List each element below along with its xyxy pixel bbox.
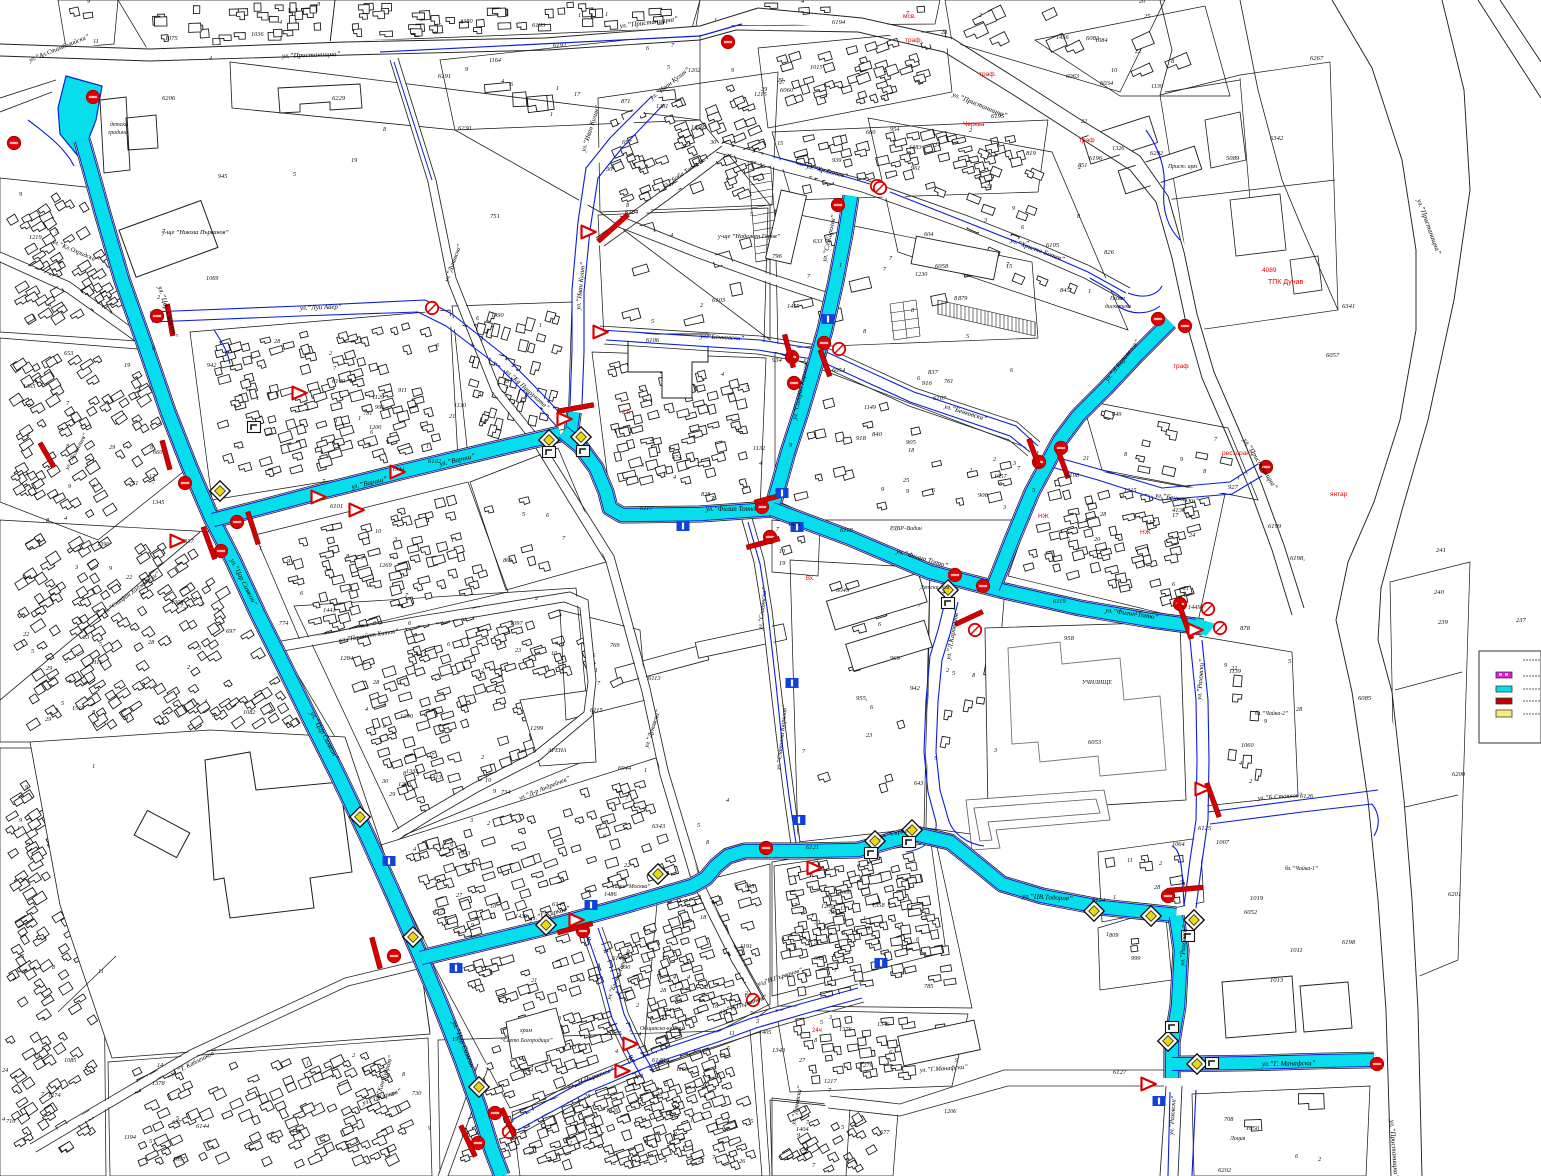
svg-text:27: 27 — [799, 1057, 806, 1064]
svg-text:3: 3 — [1002, 504, 1006, 511]
svg-text:655: 655 — [745, 883, 754, 890]
svg-text:27: 27 — [779, 79, 786, 86]
svg-text:1390: 1390 — [97, 541, 110, 548]
svg-text:10: 10 — [375, 528, 382, 535]
svg-text:761: 761 — [944, 378, 953, 385]
svg-text:22: 22 — [1081, 118, 1087, 125]
svg-text:837: 837 — [928, 369, 939, 376]
svg-text:1413: 1413 — [429, 774, 442, 781]
svg-text:1130: 1130 — [454, 402, 467, 409]
svg-text:2: 2 — [187, 664, 190, 671]
svg-text:1284: 1284 — [340, 655, 354, 662]
svg-text:13: 13 — [840, 905, 846, 912]
svg-text:1: 1 — [539, 322, 542, 329]
svg-text:6198: 6198 — [1342, 939, 1356, 946]
svg-text:809: 809 — [1109, 932, 1119, 939]
svg-text:27: 27 — [428, 752, 435, 759]
svg-text:1: 1 — [839, 262, 842, 269]
svg-text:1405: 1405 — [759, 1029, 771, 1036]
svg-text:774: 774 — [279, 620, 288, 627]
svg-text:1011: 1011 — [1290, 947, 1303, 954]
svg-text:хижа”Москва”: хижа”Москва” — [611, 884, 650, 890]
svg-text:29: 29 — [761, 86, 767, 93]
svg-text:237: 237 — [1516, 617, 1527, 624]
svg-text:5: 5 — [1180, 879, 1183, 886]
svg-text:1345: 1345 — [152, 499, 164, 506]
svg-text:3: 3 — [203, 698, 207, 705]
svg-text:5: 5 — [293, 171, 296, 178]
svg-text:4: 4 — [687, 974, 690, 981]
svg-text:1116: 1116 — [91, 659, 103, 666]
svg-text:10: 10 — [490, 903, 497, 910]
svg-text:828: 828 — [701, 491, 711, 498]
svg-text:9: 9 — [19, 817, 22, 824]
svg-text:954: 954 — [890, 126, 899, 133]
svg-text:10: 10 — [779, 548, 786, 555]
svg-text:6102: 6102 — [428, 458, 442, 465]
svg-text:ул.”Г. Манафски”: ул.”Г. Манафски” — [1261, 1059, 1316, 1068]
svg-text:2: 2 — [969, 127, 972, 134]
svg-text:1200: 1200 — [369, 424, 382, 431]
svg-text:30: 30 — [605, 166, 613, 173]
svg-text:905: 905 — [906, 439, 917, 446]
svg-text:1365: 1365 — [23, 383, 35, 390]
svg-text:2: 2 — [636, 1002, 639, 1009]
svg-text:3: 3 — [197, 645, 201, 652]
svg-text:20: 20 — [1094, 536, 1101, 543]
svg-text:1376: 1376 — [839, 1026, 852, 1033]
svg-text:4: 4 — [670, 232, 673, 239]
svg-text:3: 3 — [74, 564, 78, 571]
svg-text:9: 9 — [955, 1057, 958, 1064]
svg-text:28: 28 — [660, 987, 667, 994]
svg-text:3: 3 — [640, 462, 644, 469]
svg-text:23: 23 — [866, 732, 872, 739]
svg-text:5: 5 — [478, 391, 481, 398]
svg-text:731: 731 — [363, 410, 372, 417]
svg-text:23: 23 — [656, 1091, 662, 1098]
svg-text:6292: 6292 — [1150, 150, 1164, 157]
svg-text:6341: 6341 — [1342, 303, 1355, 310]
svg-text:градина: градина — [108, 129, 128, 136]
svg-text:958: 958 — [1064, 635, 1075, 642]
svg-text:1219: 1219 — [29, 234, 42, 241]
svg-text:1006: 1006 — [839, 889, 852, 896]
svg-text:1230: 1230 — [915, 271, 928, 278]
svg-text:6202: 6202 — [1218, 1167, 1232, 1174]
svg-text:6115: 6115 — [590, 707, 603, 714]
svg-text:3: 3 — [923, 915, 927, 922]
svg-text:911: 911 — [398, 387, 407, 394]
svg-text:1015: 1015 — [810, 64, 823, 71]
svg-text:677: 677 — [880, 1129, 890, 1136]
svg-text:6057: 6057 — [1326, 352, 1340, 359]
svg-text:24: 24 — [2, 1067, 8, 1074]
svg-text:4: 4 — [673, 474, 676, 481]
svg-text:819: 819 — [1026, 150, 1037, 157]
svg-text:5: 5 — [750, 1118, 753, 1125]
svg-text:1139: 1139 — [1151, 83, 1163, 90]
svg-text:2: 2 — [487, 820, 490, 827]
svg-text:4: 4 — [402, 782, 405, 789]
svg-text:6201: 6201 — [1448, 891, 1461, 898]
svg-text:916: 916 — [922, 380, 933, 387]
svg-text:4: 4 — [942, 589, 945, 596]
svg-text:1: 1 — [690, 1117, 693, 1124]
svg-text:Прист. арм: Прист. арм — [1167, 164, 1197, 170]
svg-text:ресторант: ресторант — [1222, 450, 1253, 457]
svg-text:Вх.: Вх. — [806, 576, 815, 582]
svg-text:1475: 1475 — [788, 521, 800, 528]
svg-text:6054: 6054 — [832, 367, 846, 374]
svg-text:1515: 1515 — [72, 705, 84, 712]
svg-text:1279: 1279 — [860, 1062, 873, 1069]
svg-text:22: 22 — [624, 862, 631, 869]
svg-text:21: 21 — [1183, 585, 1189, 592]
svg-text:17: 17 — [791, 902, 798, 909]
svg-text:918: 918 — [856, 435, 867, 442]
svg-text:1274: 1274 — [48, 1092, 61, 1099]
svg-text:30: 30 — [381, 778, 389, 785]
svg-text:5089: 5089 — [1226, 155, 1240, 162]
svg-text:6125: 6125 — [1198, 825, 1212, 832]
svg-text:1057: 1057 — [994, 473, 1007, 480]
svg-text:дискотека: дискотека — [1105, 303, 1131, 310]
svg-text:6146: 6146 — [612, 955, 626, 962]
svg-text:4: 4 — [721, 371, 724, 378]
svg-text:22: 22 — [23, 631, 29, 638]
svg-text:943: 943 — [461, 850, 470, 857]
svg-text:АРЕНА: АРЕНА — [547, 748, 567, 754]
svg-text:1007: 1007 — [1216, 839, 1230, 846]
svg-text:927: 927 — [1228, 484, 1239, 491]
svg-text:9: 9 — [25, 784, 28, 791]
svg-text:1097: 1097 — [510, 620, 523, 627]
svg-text:5: 5 — [667, 64, 670, 71]
svg-text:15: 15 — [777, 140, 783, 147]
svg-text:999: 999 — [1131, 955, 1141, 962]
svg-text:13: 13 — [637, 1096, 643, 1103]
svg-text:5: 5 — [697, 822, 700, 829]
svg-text:9: 9 — [731, 67, 734, 74]
svg-text:6108: 6108 — [1066, 472, 1080, 479]
svg-text:3: 3 — [755, 1018, 759, 1025]
svg-text:4: 4 — [726, 797, 729, 804]
svg-text:6060: 6060 — [780, 87, 794, 94]
svg-text:6149: 6149 — [652, 1057, 666, 1064]
svg-text:18: 18 — [908, 447, 915, 454]
svg-text:1075: 1075 — [165, 35, 178, 42]
svg-text:1: 1 — [17, 825, 20, 832]
svg-text:РДВР–Видин: РДВР–Видин — [889, 525, 922, 532]
svg-text:6119: 6119 — [1053, 598, 1066, 605]
svg-text:969: 969 — [890, 655, 901, 662]
svg-text:5: 5 — [952, 670, 955, 677]
svg-text:ТПК Дунав: ТПК Дунав — [1268, 279, 1303, 286]
svg-text:30: 30 — [801, 1146, 809, 1153]
svg-text:1194: 1194 — [124, 1134, 136, 1141]
svg-text:1: 1 — [306, 1060, 309, 1067]
svg-text:5: 5 — [651, 318, 654, 325]
svg-text:6193: 6193 — [532, 22, 546, 29]
svg-text:5: 5 — [55, 228, 58, 235]
svg-text:4: 4 — [2, 1116, 5, 1123]
svg-text:942: 942 — [910, 685, 921, 692]
svg-text:29: 29 — [109, 444, 115, 451]
svg-text:6053: 6053 — [1088, 739, 1102, 746]
svg-text:1: 1 — [578, 12, 581, 19]
svg-text:1: 1 — [358, 415, 361, 422]
svg-text:996: 996 — [375, 404, 385, 411]
svg-text:4: 4 — [413, 846, 416, 853]
svg-text:траф: траф — [1079, 137, 1095, 144]
svg-text:2: 2 — [745, 990, 748, 997]
svg-text:878: 878 — [1240, 625, 1251, 632]
svg-text:бл.”Чайка-2”: бл.”Чайка-2” — [1255, 710, 1288, 717]
svg-text:1139: 1139 — [1229, 668, 1241, 675]
svg-text:955,: 955, — [856, 695, 868, 702]
svg-text:6101: 6101 — [330, 503, 343, 510]
svg-text:708: 708 — [1224, 1116, 1234, 1123]
svg-text:6195: 6195 — [991, 113, 1005, 120]
svg-text:5: 5 — [31, 648, 34, 655]
svg-text:10: 10 — [1111, 67, 1118, 74]
svg-text:751: 751 — [490, 213, 500, 220]
svg-text:734: 734 — [501, 789, 510, 796]
svg-text:4: 4 — [279, 19, 282, 26]
svg-text:6342: 6342 — [1270, 135, 1284, 142]
svg-text:1433: 1433 — [515, 913, 528, 920]
svg-text:11: 11 — [93, 38, 99, 45]
svg-text:6194: 6194 — [832, 19, 846, 26]
svg-text:730: 730 — [412, 1090, 422, 1097]
svg-text:11: 11 — [1127, 857, 1133, 864]
svg-text:863: 863 — [503, 557, 512, 564]
svg-text:5: 5 — [42, 1016, 45, 1023]
svg-text:28: 28 — [1100, 511, 1107, 518]
svg-text:28: 28 — [148, 639, 155, 646]
svg-text:бл.”Чайка-1”: бл.”Чайка-1” — [1285, 865, 1318, 872]
svg-text:20: 20 — [1139, 0, 1146, 5]
svg-text:6199: 6199 — [1268, 523, 1282, 530]
svg-text:9: 9 — [1012, 205, 1015, 212]
svg-text:24: 24 — [1189, 532, 1195, 539]
svg-text:1426: 1426 — [606, 1107, 619, 1114]
svg-text:5: 5 — [1288, 658, 1291, 665]
svg-text:27: 27 — [698, 1157, 705, 1164]
svg-text:26: 26 — [739, 1158, 746, 1165]
svg-text:4: 4 — [1239, 760, 1242, 767]
svg-text:1378: 1378 — [152, 1080, 165, 1087]
svg-text:4089: 4089 — [1262, 267, 1277, 274]
svg-text:942: 942 — [207, 362, 216, 369]
svg-text:5: 5 — [814, 939, 817, 946]
svg-text:1: 1 — [556, 85, 559, 92]
svg-text:24: 24 — [934, 142, 940, 149]
svg-text:2: 2 — [969, 467, 972, 474]
svg-text:5: 5 — [727, 1045, 730, 1052]
svg-text:6085: 6085 — [1358, 695, 1372, 702]
svg-text:22: 22 — [1135, 48, 1141, 55]
svg-text:4: 4 — [125, 715, 128, 722]
svg-text:240: 240 — [1434, 589, 1445, 596]
svg-text:6230: 6230 — [458, 125, 472, 132]
svg-text:6103: 6103 — [712, 297, 726, 304]
svg-text:5: 5 — [212, 712, 215, 719]
svg-text:1: 1 — [1135, 610, 1138, 617]
svg-text:1: 1 — [863, 915, 866, 922]
svg-text:662: 662 — [814, 955, 824, 962]
svg-text:604: 604 — [924, 231, 933, 238]
svg-text:3: 3 — [828, 1014, 832, 1021]
svg-text:19: 19 — [351, 157, 357, 164]
svg-text:29: 29 — [46, 665, 52, 672]
svg-text:17: 17 — [1149, 519, 1156, 526]
svg-text:27: 27 — [456, 892, 463, 899]
svg-text:1: 1 — [168, 636, 171, 643]
svg-text:1: 1 — [451, 537, 454, 544]
svg-text:6063: 6063 — [1066, 73, 1080, 80]
svg-text:4130: 4130 — [1172, 507, 1186, 514]
svg-text:6034: 6034 — [1100, 80, 1114, 87]
svg-text:28: 28 — [941, 29, 948, 36]
svg-text:906: 906 — [978, 492, 989, 499]
svg-text:3: 3 — [415, 771, 419, 778]
svg-text:6267: 6267 — [1310, 55, 1324, 62]
svg-text:1441: 1441 — [323, 607, 336, 614]
svg-text:28: 28 — [1154, 884, 1161, 891]
svg-text:1085: 1085 — [64, 1057, 76, 1064]
svg-text:1129: 1129 — [372, 394, 385, 401]
svg-text:6206: 6206 — [162, 95, 176, 102]
svg-text:934: 934 — [772, 357, 783, 364]
svg-text:23: 23 — [83, 634, 89, 641]
svg-text:2: 2 — [200, 601, 203, 608]
svg-text:5: 5 — [750, 1010, 753, 1017]
svg-text:845: 845 — [1060, 287, 1071, 294]
svg-text:3: 3 — [393, 536, 397, 543]
svg-text:1202: 1202 — [688, 67, 700, 74]
svg-text:5: 5 — [574, 1061, 577, 1068]
svg-text:5: 5 — [1067, 536, 1070, 543]
svg-text:3: 3 — [993, 747, 997, 754]
svg-text:16: 16 — [676, 997, 683, 1004]
svg-text:1: 1 — [509, 812, 512, 819]
svg-text:23: 23 — [986, 183, 992, 190]
svg-text:24ч: 24ч — [812, 1028, 822, 1034]
svg-text:2: 2 — [481, 754, 484, 761]
svg-text:6126: 6126 — [1300, 793, 1314, 800]
svg-text:1490: 1490 — [491, 312, 504, 319]
svg-text:5: 5 — [820, 1019, 823, 1026]
svg-text:4: 4 — [615, 1048, 618, 1055]
svg-text:826: 826 — [1104, 249, 1115, 256]
svg-text:1215: 1215 — [1124, 487, 1136, 494]
svg-text:5: 5 — [149, 1138, 152, 1145]
svg-text:774: 774 — [662, 1007, 671, 1014]
svg-text:у-ще ”Надежен Геров”: у-ще ”Надежен Геров” — [717, 233, 781, 240]
svg-text:4: 4 — [664, 1158, 667, 1165]
svg-text:28: 28 — [373, 679, 380, 686]
svg-text:751: 751 — [129, 480, 138, 487]
svg-text:1132: 1132 — [753, 445, 766, 452]
svg-text:1036: 1036 — [251, 31, 264, 38]
svg-text:18: 18 — [700, 914, 707, 921]
svg-text:Общинско-кв.Вли: Общинско-кв.Вли — [640, 1025, 683, 1032]
svg-text:1303: 1303 — [171, 599, 183, 606]
svg-text:840: 840 — [872, 431, 883, 438]
svg-text:5: 5 — [99, 641, 102, 648]
svg-text:1082: 1082 — [243, 709, 255, 716]
svg-text:1455: 1455 — [787, 303, 799, 310]
svg-text:1: 1 — [426, 443, 429, 450]
svg-text:1149: 1149 — [864, 404, 876, 411]
svg-text:30: 30 — [813, 919, 821, 926]
svg-text:5: 5 — [1032, 487, 1035, 494]
svg-text:9: 9 — [493, 788, 496, 795]
svg-text:3: 3 — [1012, 460, 1016, 467]
svg-text:6058: 6058 — [935, 263, 949, 270]
svg-text:1050: 1050 — [1246, 1125, 1260, 1132]
svg-text:241: 241 — [1436, 547, 1446, 554]
svg-text:1: 1 — [674, 983, 677, 990]
svg-text:6045: 6045 — [836, 587, 850, 594]
svg-text:871: 871 — [621, 98, 630, 105]
svg-text:”Свето Богородица”: ”Свето Богородица” — [500, 1037, 553, 1044]
svg-text:2: 2 — [157, 294, 160, 301]
svg-text:1191: 1191 — [740, 943, 752, 950]
svg-text:6196: 6196 — [1089, 155, 1103, 162]
svg-text:10: 10 — [551, 650, 558, 657]
svg-text:1358: 1358 — [872, 902, 885, 909]
svg-text:6192: 6192 — [553, 42, 567, 49]
svg-text:3: 3 — [572, 1044, 576, 1051]
svg-text:6144: 6144 — [196, 1123, 210, 1130]
svg-text:29: 29 — [389, 791, 395, 798]
svg-text:1290: 1290 — [400, 713, 414, 720]
svg-text:4: 4 — [759, 460, 762, 467]
svg-text:239: 239 — [1438, 619, 1449, 626]
svg-text:1326: 1326 — [1112, 145, 1125, 152]
svg-text:961: 961 — [911, 165, 920, 172]
svg-text:6127: 6127 — [1113, 1069, 1127, 1076]
svg-text:янтар: янтар — [1330, 491, 1348, 498]
svg-text:6191: 6191 — [438, 73, 451, 80]
svg-text:649: 649 — [1112, 411, 1122, 418]
svg-text:1069: 1069 — [206, 275, 218, 282]
svg-text:9: 9 — [1264, 718, 1267, 725]
svg-text:1: 1 — [811, 912, 814, 919]
svg-text:1499: 1499 — [691, 124, 704, 131]
svg-text:5: 5 — [522, 511, 525, 518]
svg-text:9: 9 — [334, 418, 337, 425]
svg-text:19: 19 — [124, 362, 131, 369]
svg-text:6104: 6104 — [625, 209, 639, 216]
svg-text:1206: 1206 — [944, 1108, 957, 1115]
svg-text:5: 5 — [966, 333, 969, 340]
svg-text:28: 28 — [274, 338, 281, 345]
svg-text:6343: 6343 — [652, 823, 666, 830]
svg-text:879: 879 — [958, 295, 967, 302]
svg-text:1: 1 — [1088, 288, 1091, 295]
svg-text:1443: 1443 — [288, 1128, 300, 1135]
svg-text:633: 633 — [813, 238, 822, 245]
svg-text:4: 4 — [209, 55, 212, 62]
svg-text:4: 4 — [365, 706, 368, 713]
svg-text:6118: 6118 — [840, 527, 853, 534]
svg-text:9: 9 — [450, 842, 453, 849]
svg-text:6117: 6117 — [640, 505, 653, 512]
